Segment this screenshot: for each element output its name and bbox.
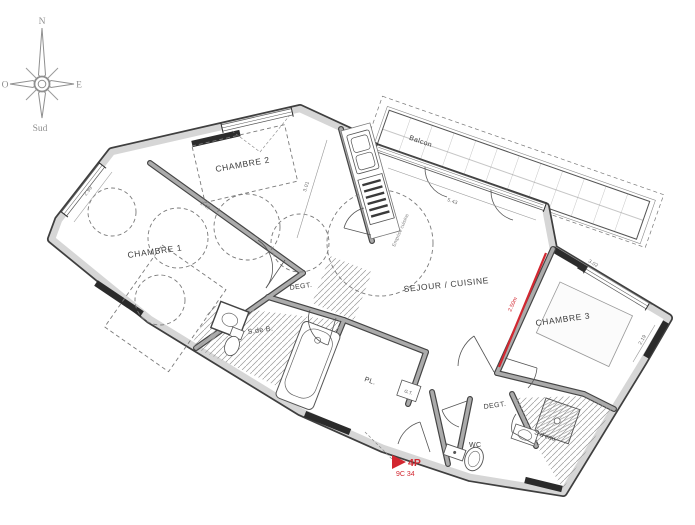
compass-rose: N O E Sud [2, 17, 83, 134]
compass-west-label: O [2, 81, 9, 91]
compass-south-label: Sud [33, 124, 48, 134]
compass-south-point [39, 89, 46, 118]
unit-ref-label: 9C 34 [396, 471, 415, 478]
compass-north-point [39, 28, 46, 79]
compass-east-point [47, 81, 74, 88]
compass-east-label: E [76, 81, 82, 91]
compass-north-label: N [39, 17, 46, 27]
floor-plan-svg: Balcon [0, 0, 695, 525]
compass-west-point [10, 81, 37, 88]
floor-plan: Balcon [0, 0, 695, 525]
room-label-wc: WC [469, 442, 481, 449]
unit-type-label: 4P [408, 457, 421, 469]
